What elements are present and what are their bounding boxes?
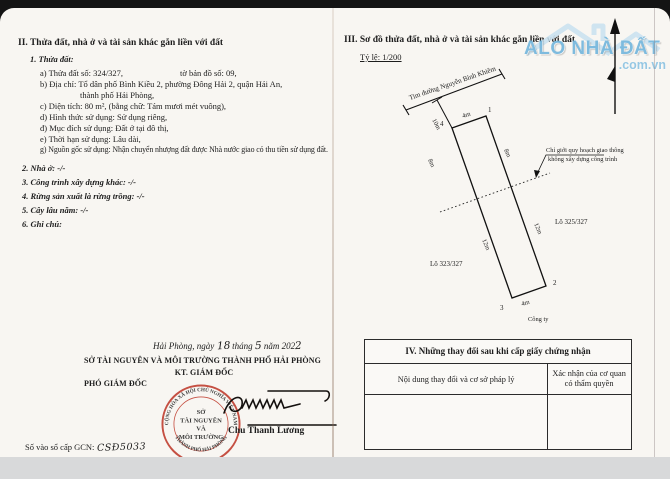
- parcel-number: a) Thửa đất số: 324/327,: [40, 68, 123, 78]
- lot-right-label: Lô 325/327: [555, 218, 588, 226]
- date-year-digit-handwritten: 2: [295, 340, 302, 352]
- right-upper-dim-label: 8m: [502, 148, 512, 158]
- signer-name: Chu Thanh Lương: [228, 426, 304, 436]
- watermark-brand-text: ALO NHÀ ĐẤT: [524, 38, 660, 60]
- address-line2: thành phố Hải Phòng,: [80, 90, 154, 100]
- lot-left-label: Lô 323/327: [430, 260, 463, 268]
- book-number-row: Số vào sổ cấp GCN: CSĐ5033: [25, 442, 146, 453]
- back-dim-label: 4m: [521, 299, 531, 308]
- stamp-line1: SỞ: [197, 408, 207, 416]
- certificate-photo: II. Thửa đất, nhà ở và tài sản khác gắn …: [0, 0, 670, 479]
- photo-background-strip: [0, 457, 670, 479]
- corner-1-label: 1: [488, 106, 492, 114]
- authority-kt: KT. GIÁM ĐỐC: [84, 368, 324, 377]
- date-month-handwritten: 5: [255, 340, 262, 352]
- changes-col2-line1: Xác nhận của cơ quan: [552, 369, 626, 379]
- date-month-label: tháng: [232, 341, 253, 351]
- corner-2-label: 2: [553, 279, 557, 287]
- stamp-line4: MÔI TRƯỜNG: [179, 433, 224, 441]
- changes-col2-header: Xác nhận của cơ quan có thẩm quyền: [547, 364, 631, 394]
- stamp-line3: VÀ: [196, 425, 206, 433]
- changes-table-title: IV. Những thay đổi sau khi cấp giấy chứn…: [365, 340, 631, 364]
- document-paper: II. Thửa đất, nhà ở và tài sản khác gắn …: [0, 8, 670, 457]
- date-year-label: năm 202: [264, 341, 295, 351]
- parcel-sketch: Tim đường Nguyễn Bỉnh Khiêm 10m 4 1 2 3 …: [336, 64, 660, 330]
- use-purpose-line: đ) Mục đích sử dụng: Đất ở tại đô thị,: [40, 123, 169, 133]
- date-prefix: Hải Phòng, ngày: [153, 341, 214, 351]
- address-line1: b) Địa chỉ: Tổ dân phố Bình Kiều 2, phườ…: [40, 79, 282, 89]
- right-lower-dim-label: 12m: [532, 222, 543, 235]
- changes-col2-line2: có thẩm quyền: [565, 379, 614, 389]
- left-upper-dim-label: 8m: [426, 158, 436, 168]
- street-name-label: Tim đường Nguyễn Bỉnh Khiêm: [408, 64, 497, 101]
- date-day-handwritten: 18: [216, 340, 230, 353]
- front-dim-label: 4m: [461, 111, 471, 120]
- use-form-line: d) Hình thức sử dụng: Sử dụng riêng,: [40, 112, 167, 122]
- corner-4-label: 4: [440, 120, 444, 128]
- center-fold-line: [332, 8, 334, 457]
- right-page-edge: [654, 8, 655, 457]
- changes-col1-header: Nội dung thay đổi và cơ sở pháp lý: [365, 364, 547, 394]
- use-term-line: e) Thời hạn sử dụng: Lâu dài,: [40, 134, 141, 144]
- planning-boundary-dotted-line: [440, 173, 550, 212]
- planning-note-line1: Chỉ giới quy hoạch giao thông: [546, 147, 625, 154]
- corner-3-label: 3: [500, 304, 504, 312]
- section2-title: II. Thửa đất, nhà ở và tài sản khác gắn …: [18, 38, 223, 48]
- subsection-thua-dat: 1. Thửa đất:: [30, 54, 74, 64]
- planning-note-line2: không xây dựng công trình: [548, 156, 618, 163]
- area-line: c) Diện tích: 80 m², (bằng chữ: Tám mươi…: [40, 101, 226, 111]
- item-nha-o: 2. Nhà ở: -/-: [22, 163, 65, 173]
- authority-deputy: PHÓ GIÁM ĐỐC: [84, 379, 147, 388]
- scale-label: Tỷ lệ: 1/200: [360, 52, 402, 62]
- map-sheet-number: tờ bản đồ số: 09,: [180, 68, 237, 78]
- date-line: Hải Phòng, ngày 18 tháng 5 năm 2022: [153, 340, 302, 352]
- item-ghi-chu: 6. Ghi chú:: [22, 219, 62, 229]
- item-cay-lau-nam: 5. Cây lâu năm: -/-: [22, 205, 88, 215]
- company-label: Công ty: [528, 316, 549, 323]
- authority-name: SỞ TÀI NGUYÊN VÀ MÔI TRƯỜNG THÀNH PHỐ HẢ…: [84, 356, 321, 365]
- use-origin-line: g) Nguồn gốc sử dụng: Nhận chuyển nhượng…: [40, 145, 328, 154]
- book-number-value-handwritten: CSĐ5033: [96, 441, 145, 454]
- item-cong-trinh: 3. Công trình xây dựng khác: -/-: [22, 177, 136, 187]
- left-lower-dim-label: 12m: [480, 238, 491, 251]
- parcel-boundary: [452, 116, 546, 298]
- changes-table: IV. Những thay đổi sau khi cấp giấy chứn…: [364, 339, 632, 450]
- item-rung: 4. Rừng sản xuất là rừng trồng: -/-: [22, 191, 145, 201]
- book-number-label: Số vào sổ cấp GCN:: [25, 442, 94, 452]
